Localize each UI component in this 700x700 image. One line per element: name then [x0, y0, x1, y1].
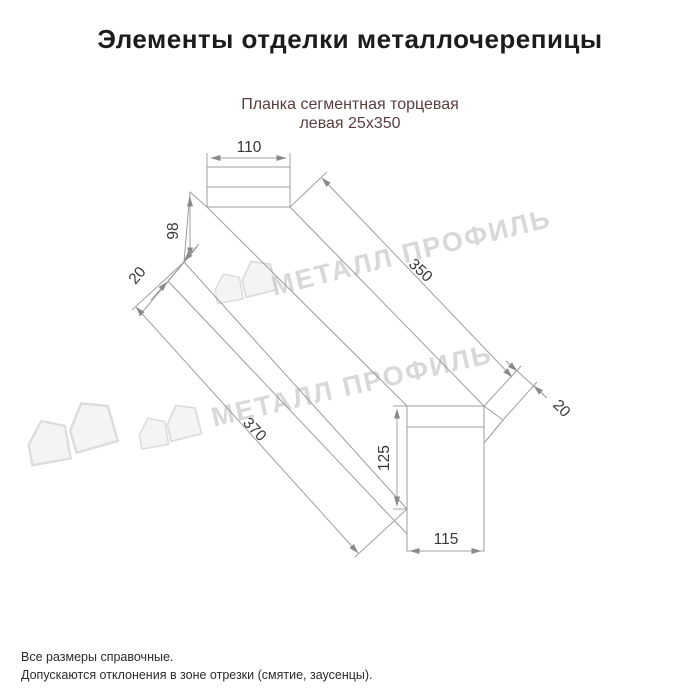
- dim-label-bottom-web-width: 115: [434, 531, 459, 549]
- dim-label-right-end-height: 125: [376, 445, 394, 471]
- dim-label-top-flange-width: 110: [237, 139, 262, 157]
- footnotes: Все размеры справочные. Допускаются откл…: [21, 648, 373, 684]
- dim-label-left-end-height: 98: [165, 222, 183, 239]
- metall-profil-logo-icon: [25, 257, 277, 465]
- footnote-2: Допускаются отклонения в зоне отрезки (с…: [21, 666, 373, 684]
- technical-drawing: [0, 0, 700, 700]
- catalog-page: { "page": { "title": "Элементы отделки м…: [0, 0, 700, 700]
- dimension-lines: [132, 153, 547, 557]
- footnote-1: Все размеры справочные.: [21, 648, 373, 666]
- part-outline: [168, 167, 503, 551]
